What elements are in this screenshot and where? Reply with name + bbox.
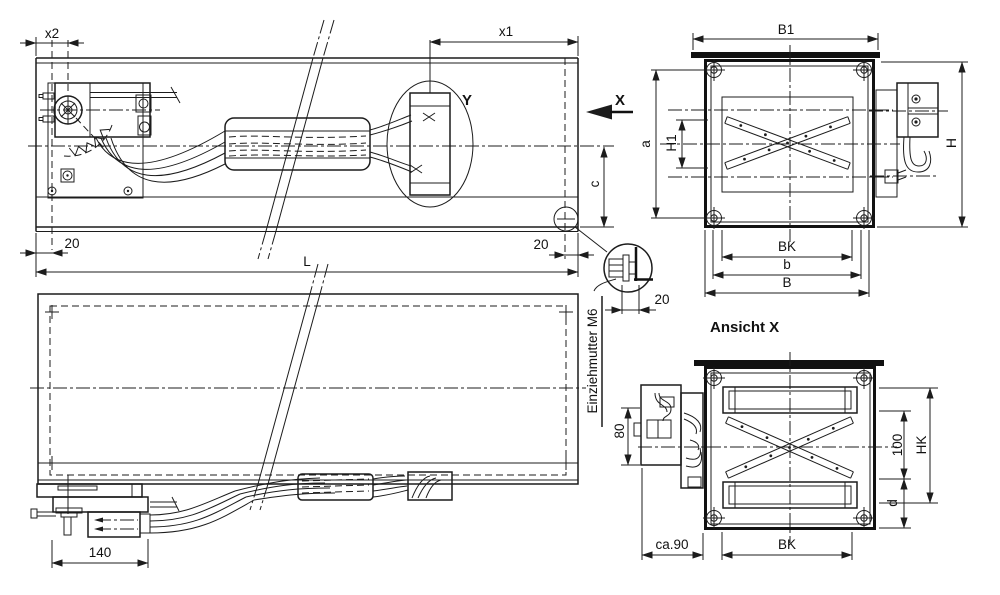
- view-arrow-label: X: [615, 92, 625, 109]
- shaft-stem: [64, 517, 71, 535]
- dim-label-140: 140: [89, 545, 112, 560]
- dim-label-l: L: [303, 254, 311, 269]
- dim-x2: x2: [20, 26, 84, 250]
- conduit-plan: [298, 474, 373, 500]
- side-view: Y x1 x2 20: [20, 20, 633, 277]
- terminal-block: [410, 93, 450, 195]
- dim-label-bk-view-x: BK: [778, 537, 796, 552]
- actuator-front: [869, 83, 948, 197]
- dim-label-20-detail: 20: [654, 292, 669, 307]
- dim-label-c: c: [587, 180, 602, 187]
- view-arrow-icon: [586, 105, 612, 120]
- dim-20-right: 20: [533, 237, 594, 255]
- actuator-view-x: [634, 385, 703, 488]
- terminal-detail-y: Y: [387, 81, 473, 207]
- dim-label-h1: H1: [664, 134, 679, 151]
- cable-conduit: [225, 118, 370, 170]
- duct-outline-plan: [38, 294, 578, 484]
- dim-20-left: 20: [20, 233, 80, 277]
- dim-l: L: [36, 233, 578, 277]
- dim-b1: B1: [693, 22, 878, 50]
- break-lines: [258, 20, 334, 259]
- dim-20-detail: 20: [605, 285, 670, 314]
- cables-plan: [150, 472, 452, 533]
- dim-label-hk: HK: [914, 436, 929, 455]
- dim-label-x2: x2: [45, 26, 59, 41]
- top-flange: [691, 52, 880, 58]
- x-brace-front: [725, 117, 850, 170]
- dim-label-b-small: b: [783, 257, 791, 272]
- dim-c: c: [580, 147, 614, 227]
- dim-label-a: a: [638, 140, 653, 148]
- dim-label-bk-front: BK: [778, 239, 796, 254]
- front-view: B1: [638, 22, 968, 297]
- break-lines-plan: [250, 264, 328, 510]
- rivet-nut-note: Einziehmutter M6: [585, 308, 600, 413]
- plan-view: 140: [30, 264, 586, 568]
- dim-label-b1: B1: [778, 22, 795, 37]
- technical-drawing-page: Y x1 x2 20: [0, 0, 1000, 595]
- dim-label-x1: x1: [499, 24, 513, 39]
- dim-label-ca90: ca.90: [655, 537, 688, 552]
- view-x: Ansicht X: [612, 319, 938, 560]
- dim-bk-view-x: BK: [722, 532, 852, 560]
- dim-right-stack: 100 d HK: [879, 388, 938, 528]
- dim-label-20-right: 20: [533, 237, 548, 252]
- dim-label-d: d: [885, 499, 900, 507]
- note-leader: [594, 279, 616, 291]
- dim-140: 140: [52, 539, 148, 568]
- duct-damper-drawing: Y x1 x2 20: [0, 0, 1000, 595]
- view-direction-arrow: X: [586, 92, 633, 120]
- detail-y-label: Y: [462, 92, 472, 109]
- actuator-side: [39, 83, 180, 198]
- dim-b-small: b: [713, 230, 861, 279]
- flange-view-x: [694, 360, 884, 366]
- dim-label-20-left: 20: [64, 236, 79, 251]
- view-x-title: Ansicht X: [710, 319, 779, 336]
- dim-label-100: 100: [890, 434, 905, 457]
- rivet-nut: [609, 255, 635, 281]
- detail-circle: [604, 244, 652, 292]
- cables: [96, 131, 225, 182]
- dim-label-h: H: [943, 138, 959, 148]
- dim-label-80: 80: [612, 423, 627, 438]
- motor-body: [88, 512, 140, 537]
- dim-label-b-large: B: [782, 275, 791, 290]
- detail-leader: [575, 227, 607, 252]
- dim-ca90: ca.90: [642, 468, 703, 560]
